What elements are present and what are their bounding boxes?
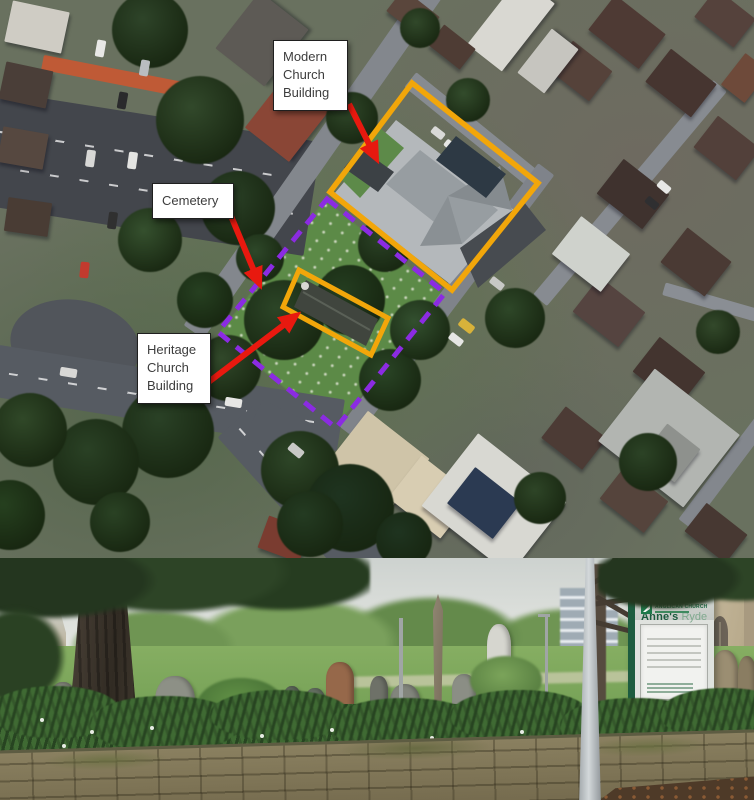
figure: Modern Church Building Cemetery Heritage… [0,0,754,800]
flower [62,744,66,748]
flower [90,730,94,734]
tree-canopy [598,558,754,622]
aerial-map: Modern Church Building Cemetery Heritage… [0,0,754,558]
agapanthus-clump [210,690,350,740]
label-modern-church: Modern Church Building [273,40,348,111]
sign-notice-board [640,624,708,700]
map-annotations [0,0,754,558]
flower [40,718,44,722]
flower [520,730,524,734]
cemetery-arrow [231,216,254,271]
modern-church-arrow [349,104,370,146]
notice-text-lines [647,633,701,673]
cemetery-photo: St Anne'sRyde ANGLICAN CHURCH [0,558,754,800]
flower [150,726,154,730]
flower [330,728,334,732]
notice-footer-lines [647,681,693,693]
label-heritage-church: Heritage Church Building [137,333,211,404]
label-cemetery: Cemetery [152,183,234,219]
street-light-arm [538,614,550,617]
flower [260,734,264,738]
